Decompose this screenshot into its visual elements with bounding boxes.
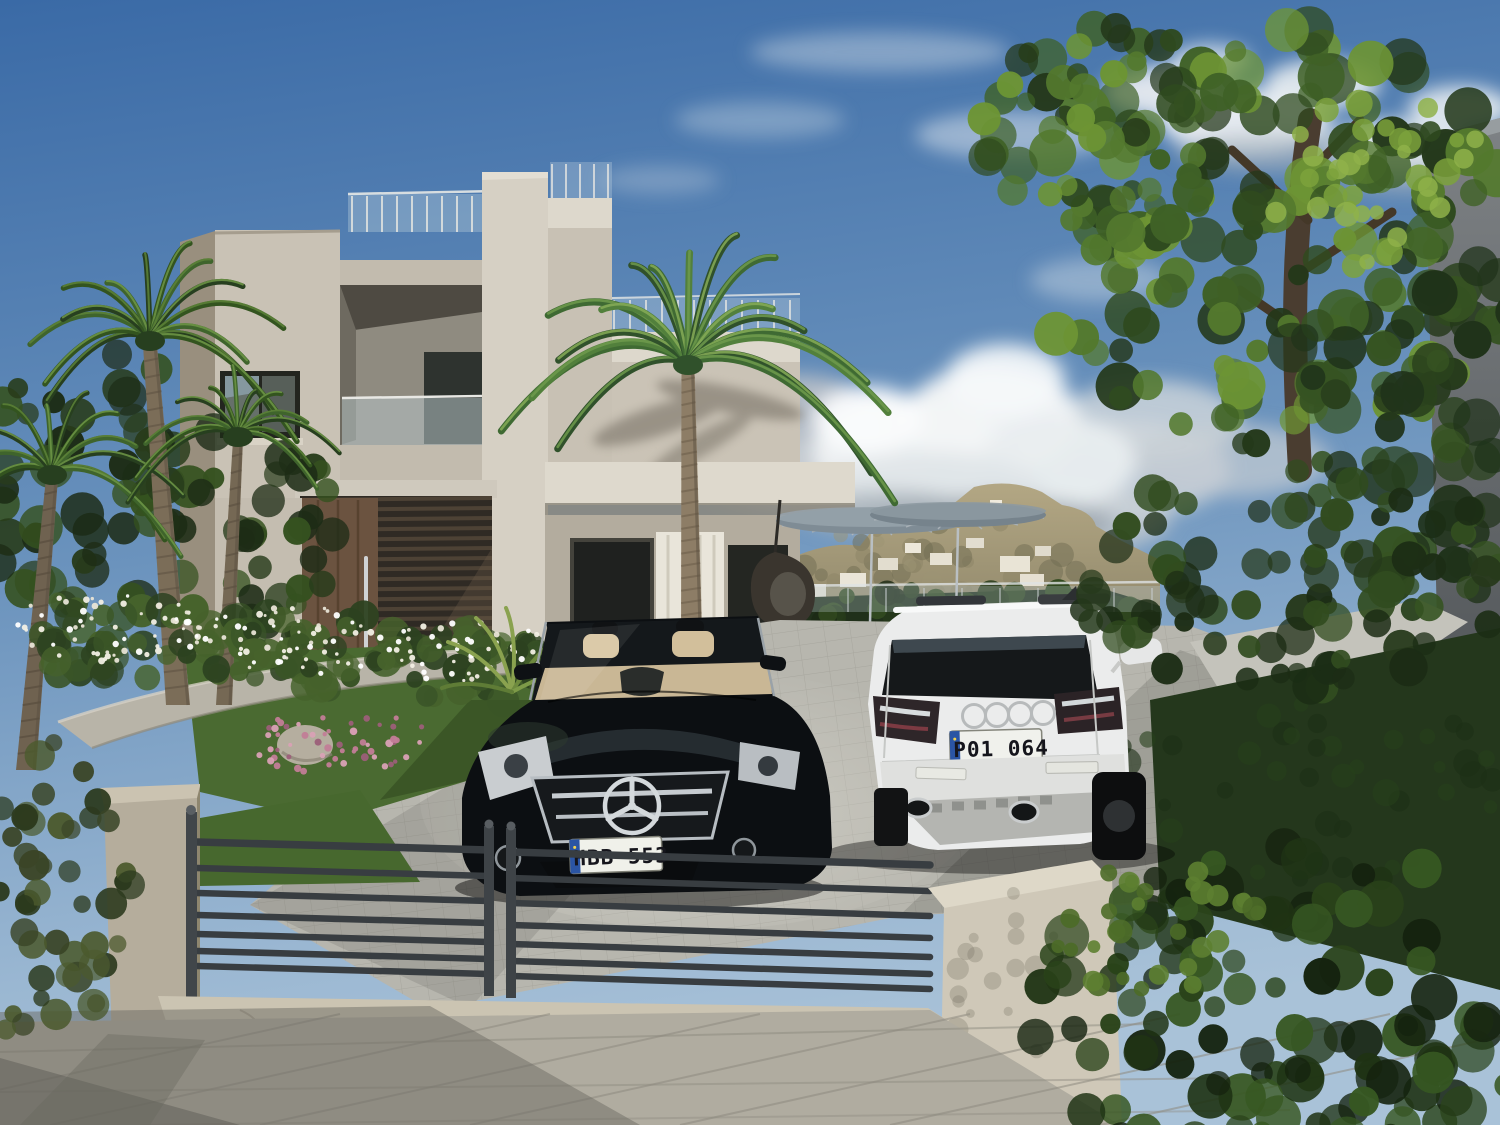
exhaust-left: [905, 799, 931, 817]
parapet-edge: [215, 231, 340, 233]
balcony-glass-balustrade: [342, 398, 482, 445]
front-grille: [532, 772, 728, 842]
villa-exterior-render: P01 064: [0, 0, 1500, 1125]
rear-wheel-left: [874, 788, 908, 846]
balcony-recess: [340, 285, 482, 445]
rear-wheel-right: [1092, 772, 1146, 860]
seat-right: [672, 631, 714, 657]
canopy-slab: [545, 462, 855, 505]
ground-floor-glass-door: [572, 540, 652, 630]
windshield: [530, 618, 774, 700]
render-canvas: P01 064: [0, 0, 1500, 1125]
exhaust-right: [1010, 802, 1038, 822]
